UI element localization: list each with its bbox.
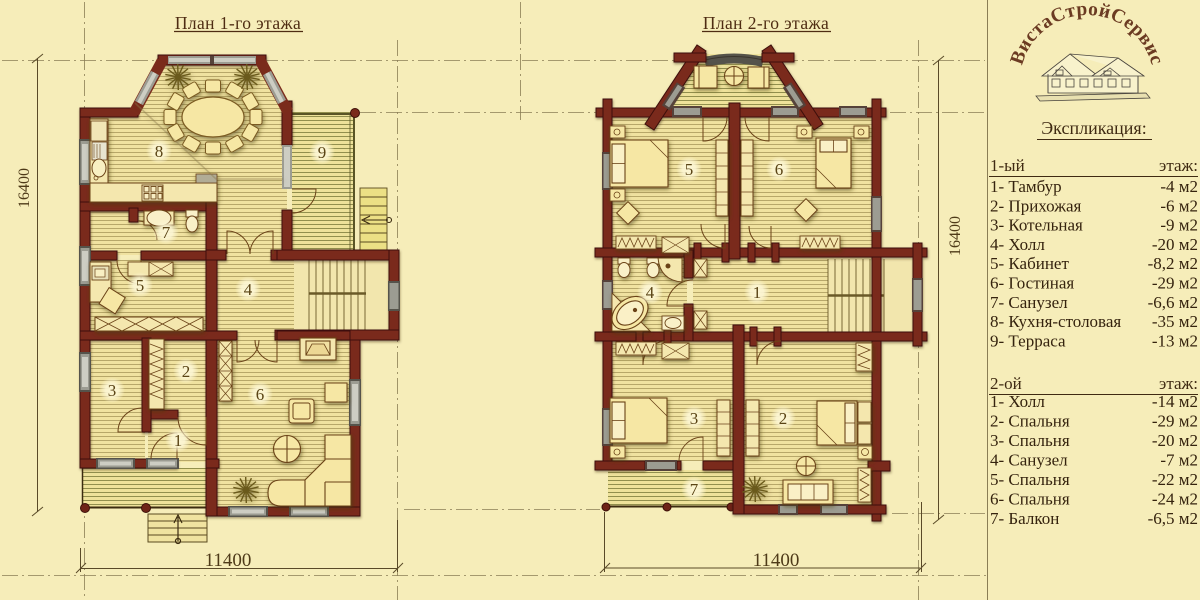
svg-text:2- Спальня: 2- Спальня [990,412,1070,431]
svg-text:4- Холл: 4- Холл [990,235,1045,254]
svg-text:План 1-го этажа: План 1-го этажа [175,13,301,33]
svg-text:4- Санузел: 4- Санузел [990,451,1068,470]
svg-text:-6,6 м2: -6,6 м2 [1148,293,1198,312]
svg-text:16400: 16400 [947,216,964,256]
svg-text:11400: 11400 [205,550,252,571]
svg-text:1: 1 [753,283,762,302]
svg-text:5- Кабинет: 5- Кабинет [990,254,1069,273]
svg-text:8: 8 [155,142,164,161]
svg-text:-9 м2: -9 м2 [1160,216,1198,235]
svg-text:7- Санузел: 7- Санузел [990,293,1068,312]
svg-text:-29 м2: -29 м2 [1152,274,1198,293]
svg-text:4: 4 [646,283,655,302]
svg-text:-13 м2: -13 м2 [1152,331,1198,350]
svg-text:этаж:: этаж: [1159,374,1198,393]
svg-text:2: 2 [779,409,788,428]
svg-text:6- Спальня: 6- Спальня [990,490,1070,509]
svg-text:-24 м2: -24 м2 [1152,490,1198,509]
svg-text:3- Котельная: 3- Котельная [990,216,1083,235]
svg-text:-22 м2: -22 м2 [1152,470,1198,489]
svg-text:1: 1 [174,431,183,450]
svg-text:7: 7 [690,480,699,499]
svg-text:6: 6 [775,160,784,179]
svg-text:16400: 16400 [16,168,33,208]
svg-text:5- Спальня: 5- Спальня [990,470,1070,489]
svg-text:3: 3 [108,381,117,400]
svg-text:-8,2 м2: -8,2 м2 [1148,254,1198,273]
svg-text:1-ый: 1-ый [990,156,1025,175]
svg-text:-20 м2: -20 м2 [1152,431,1198,450]
svg-text:-6 м2: -6 м2 [1160,196,1198,215]
svg-text:этаж:: этаж: [1159,156,1198,175]
svg-text:6: 6 [256,385,265,404]
svg-text:3- Спальня: 3- Спальня [990,431,1070,450]
svg-text:4: 4 [244,280,253,299]
svg-text:-6,5 м2: -6,5 м2 [1148,509,1198,528]
svg-text:9: 9 [318,143,327,162]
svg-text:11400: 11400 [753,550,800,571]
svg-text:-14 м2: -14 м2 [1152,392,1198,411]
svg-text:5: 5 [685,160,694,179]
svg-text:1- Холл: 1- Холл [990,392,1045,411]
svg-text:-7 м2: -7 м2 [1160,451,1198,470]
svg-text:-20 м2: -20 м2 [1152,235,1198,254]
svg-text:6- Гостиная: 6- Гостиная [990,274,1074,293]
svg-text:7- Балкон: 7- Балкон [990,509,1059,528]
svg-text:-35 м2: -35 м2 [1152,312,1198,331]
svg-text:9- Терраса: 9- Терраса [990,331,1066,350]
svg-text:1- Тамбур: 1- Тамбур [990,177,1062,196]
svg-text:План 2-го этажа: План 2-го этажа [703,13,829,33]
svg-text:-29 м2: -29 м2 [1152,412,1198,431]
svg-text:2- Прихожая: 2- Прихожая [990,196,1082,215]
svg-text:5: 5 [136,276,145,295]
svg-text:7: 7 [162,223,171,242]
svg-text:2: 2 [182,362,191,381]
svg-text:Экспликация:: Экспликация: [1041,118,1146,138]
svg-text:-4 м2: -4 м2 [1160,177,1198,196]
svg-text:8- Кухня-столовая: 8- Кухня-столовая [990,312,1121,331]
svg-text:3: 3 [690,409,699,428]
svg-text:2-ой: 2-ой [990,374,1022,393]
